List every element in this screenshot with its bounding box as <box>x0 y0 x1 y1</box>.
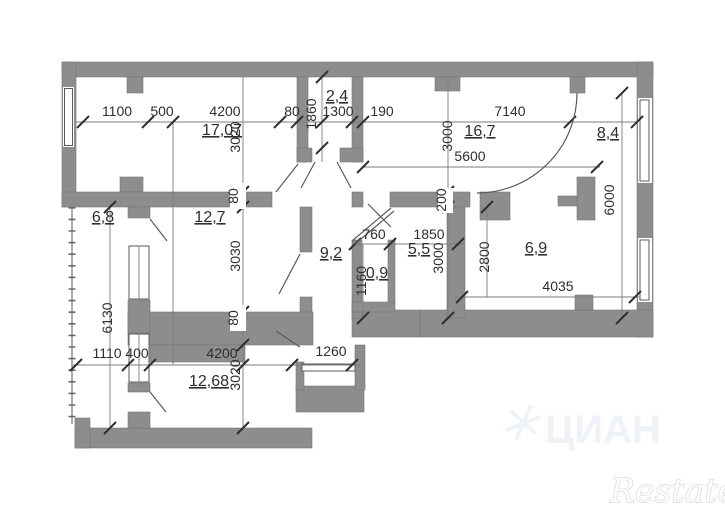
window-left-wall <box>65 89 73 146</box>
room-label-corridor-right: 8,4 <box>597 125 619 142</box>
dim-left-3020b: 3020 <box>227 359 243 390</box>
cian-watermark: ЦИАН <box>506 405 661 452</box>
window-right-upper <box>640 100 649 181</box>
room-label-hallway: 9,2 <box>320 245 342 262</box>
dim-left-6130: 6130 <box>99 302 115 333</box>
cian-watermark-text: ЦИАН <box>545 408 661 452</box>
floor-plan-page: 17,07 2,4 16,7 8,4 6,8 12,7 9,2 5,5 0,9 … <box>0 0 725 513</box>
dim-v-3000a: 3000 <box>439 120 455 151</box>
dim-mid-4035: 4035 <box>542 278 573 294</box>
dim-top-500: 500 <box>150 103 174 119</box>
dim-v-1160: 1160 <box>353 266 369 296</box>
dim-v-2800: 2800 <box>476 241 492 272</box>
dim-top-190: 190 <box>370 103 394 119</box>
room-label-kitchen-living: 16,7 <box>464 123 495 140</box>
dim-v-3000b: 3000 <box>430 242 446 273</box>
room-label-kitchen: 6,9 <box>525 240 547 257</box>
room-label-balcony: 6,8 <box>92 209 114 226</box>
dim-mid-1850: 1850 <box>413 226 444 242</box>
dim-left-80b: 80 <box>225 310 241 326</box>
dim-bot-4200: 4200 <box>206 345 237 361</box>
dim-bot-1110: 1110 <box>92 345 121 361</box>
dim-left-80a: 80 <box>225 188 241 204</box>
dim-left-3030: 3030 <box>227 240 243 271</box>
floor-plan-svg: 17,07 2,4 16,7 8,4 6,8 12,7 9,2 5,5 0,9 … <box>0 0 725 513</box>
dim-v-200: 200 <box>433 188 449 212</box>
dim-mid-760: 760 <box>362 226 386 242</box>
dim-mid-5600: 5600 <box>454 148 485 164</box>
dim-v-1860: 1860 <box>303 98 319 129</box>
room-label-bedroom2: 12,68 <box>189 373 229 390</box>
dim-v-6000: 6000 <box>601 184 617 215</box>
dim-bot-1260: 1260 <box>315 343 346 359</box>
dim-left-3020: 3020 <box>227 121 243 152</box>
restate-watermark-text: Restate <box>609 471 725 510</box>
dim-top-7140: 7140 <box>494 103 525 119</box>
room-label-bedroom: 12,7 <box>194 209 225 226</box>
dim-top-1300: 1300 <box>322 103 353 119</box>
window-right-lower <box>640 240 649 300</box>
cian-logo-icon <box>506 405 540 440</box>
dim-top-80: 80 <box>284 103 300 119</box>
dim-top-1100: 1100 <box>102 103 132 119</box>
dim-top-4200: 4200 <box>209 103 240 119</box>
room-label-bathroom: 5,5 <box>408 241 430 258</box>
dim-bot-400: 400 <box>125 345 149 361</box>
room-label-wc: 0,9 <box>366 265 388 282</box>
